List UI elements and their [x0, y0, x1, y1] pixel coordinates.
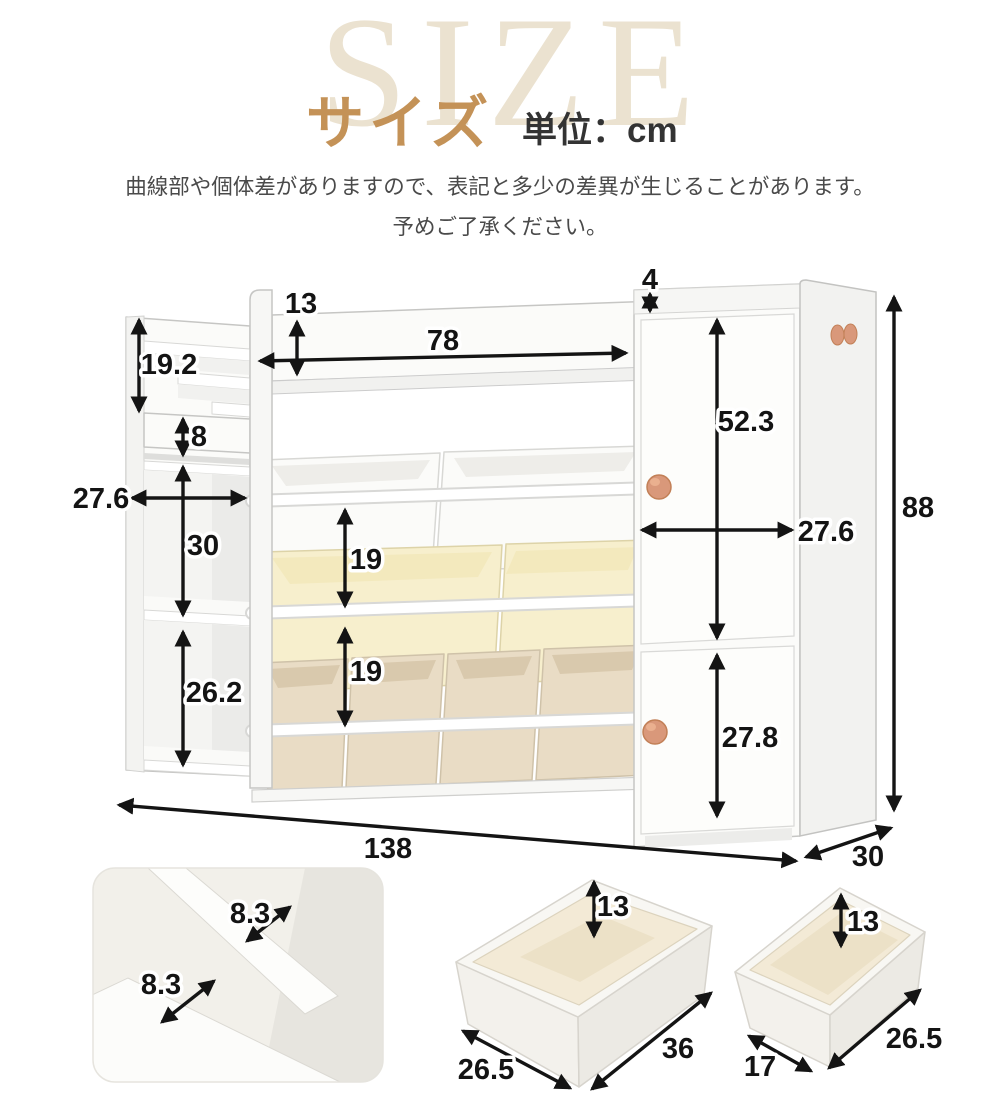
label-rack-display-height: 19.2 — [141, 349, 197, 381]
label-large-bin-width: 26.5 — [458, 1054, 514, 1086]
toy-organizer — [250, 290, 655, 802]
lower-door-knob — [643, 720, 667, 744]
label-large-bin-length: 36 — [662, 1033, 694, 1065]
label-slot-depth-b: 8.3 — [141, 969, 181, 1001]
label-overall-depth: 30 — [852, 841, 884, 873]
organizer-side-panel — [250, 290, 272, 788]
label-rack-upper-compartment: 30 — [187, 530, 219, 562]
label-upper-door-height: 52.3 — [718, 406, 774, 438]
cabinet-side-panel — [800, 280, 876, 836]
label-rack-slot-height: 8 — [191, 421, 207, 453]
label-rack-lower-compartment: 26.2 — [186, 677, 242, 709]
label-slot-depth-a: 8.3 — [230, 898, 270, 930]
label-row-gap-upper: 19 — [350, 544, 382, 576]
label-overall-width: 138 — [364, 833, 412, 865]
label-lower-door-height: 27.8 — [722, 722, 778, 754]
upper-door-knob — [647, 475, 671, 499]
label-small-bin-length: 26.5 — [886, 1023, 942, 1055]
label-rack-width: 27.6 — [73, 483, 129, 515]
label-small-bin-width: 17 — [744, 1051, 776, 1083]
label-back-panel-height: 13 — [285, 288, 317, 320]
label-large-bin-height: 13 — [597, 891, 629, 923]
label-cabinet-top-edge: 4 — [642, 264, 658, 296]
label-overall-height: 88 — [902, 492, 934, 524]
size-infographic-page: SIZE サイズ 単位：cm 曲線部や個体差がありますので、表記と多少の差異が生… — [0, 0, 1000, 1100]
cabinet — [634, 280, 876, 848]
label-cabinet-width: 27.6 — [798, 516, 854, 548]
label-row-gap-lower: 19 — [350, 656, 382, 688]
furniture-dimension-diagram: 13 78 4 19.2 8 27.6 30 26.2 19 19 52.3 2… — [0, 0, 1000, 1100]
label-top-shelf-width: 78 — [427, 325, 459, 357]
label-small-bin-height: 13 — [847, 906, 879, 938]
